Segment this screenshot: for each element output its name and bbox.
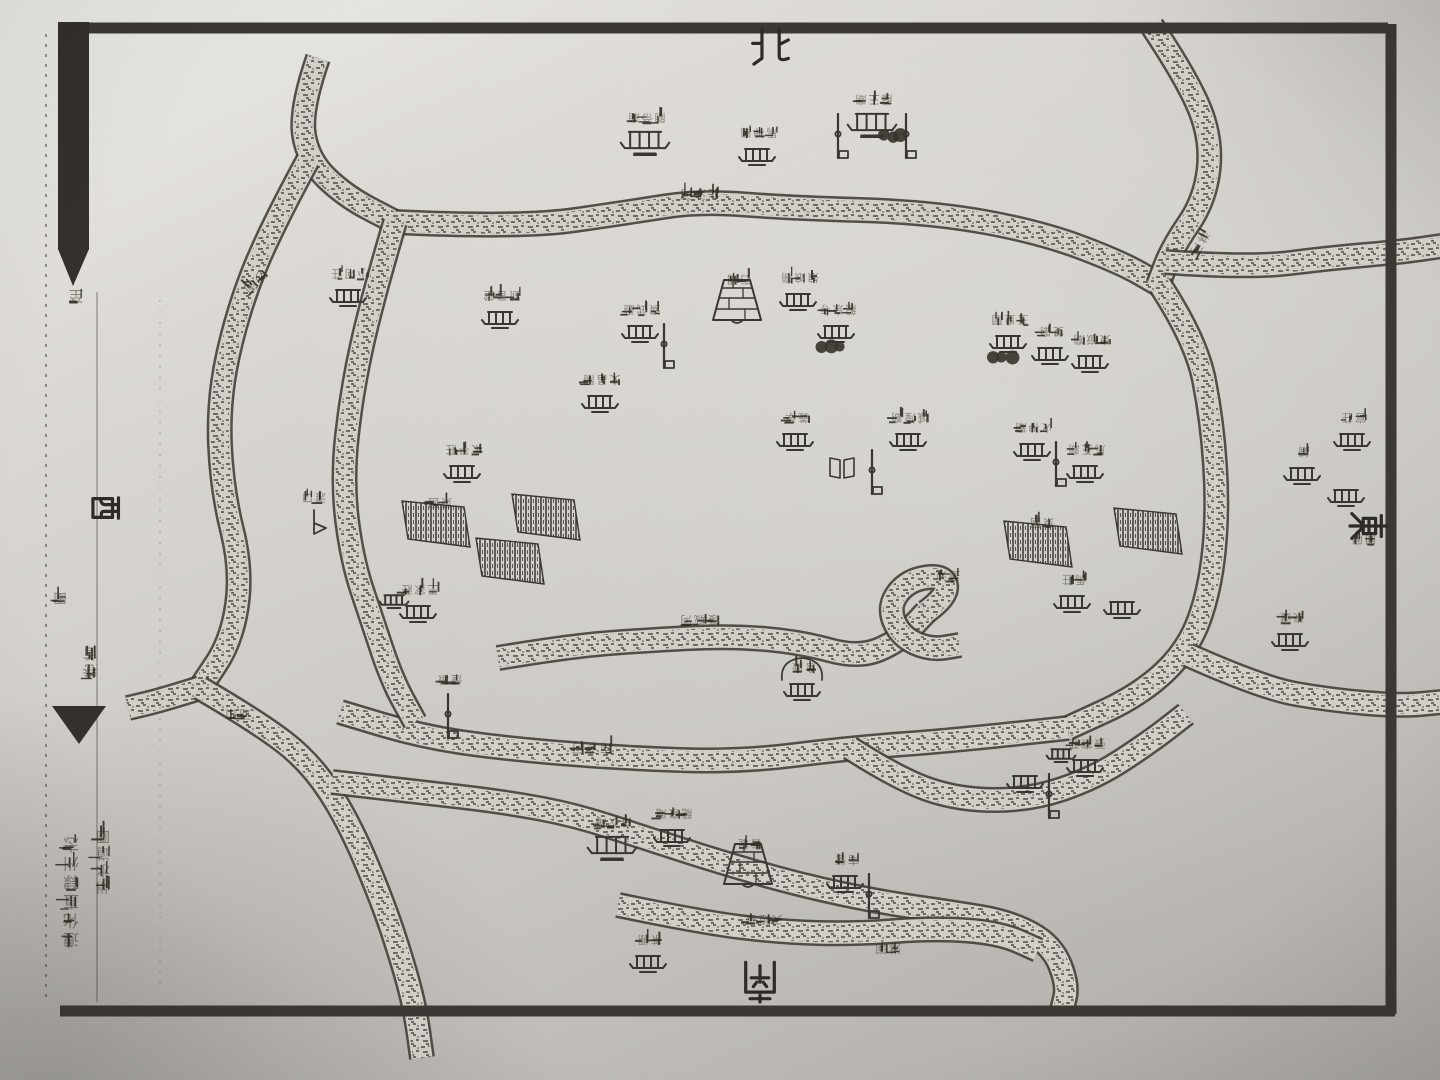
svg-text:墩: 墩 [438, 673, 449, 687]
feature-label: 渡口 [302, 489, 326, 506]
svg-text:圖: 圖 [96, 829, 110, 845]
river-top-left-stream [303, 58, 395, 222]
margin-title-outer: 遵化直隸州志 [55, 834, 79, 949]
svg-text:沙: 沙 [694, 187, 706, 201]
svg-text:園: 園 [1030, 516, 1041, 529]
river-name-label: 南沙河 [569, 735, 612, 755]
feature-label: 茶棚 [635, 929, 662, 947]
svg-text:莊: 莊 [446, 443, 457, 456]
feature-label: 張家莊 [1066, 736, 1106, 752]
svg-text:家: 家 [415, 583, 426, 597]
svg-text:渡: 渡 [315, 491, 326, 505]
svg-text:衣: 衣 [609, 816, 620, 830]
svg-text:河: 河 [680, 613, 692, 627]
feature-label: 小河莊 [332, 265, 369, 280]
svg-text:水: 水 [96, 863, 110, 879]
svg-text:天: 天 [772, 913, 783, 925]
svg-text:廟: 廟 [856, 93, 867, 107]
svg-text:沙: 沙 [586, 741, 598, 755]
svg-text:河: 河 [680, 187, 692, 201]
river-south-inner-band [332, 782, 1066, 1010]
feature-label: 馬王廟 [1067, 441, 1106, 457]
feature-house [1032, 348, 1068, 364]
svg-text:首: 首 [82, 644, 97, 661]
feature-twinflag [835, 114, 916, 158]
svg-text:河: 河 [345, 267, 356, 280]
feature-temple [621, 132, 670, 155]
svg-text:廟: 廟 [1016, 421, 1027, 435]
feature-flag [869, 450, 882, 494]
feature-label: 官莊 [1341, 408, 1366, 425]
margin-section-char: 圖 [51, 587, 67, 606]
feature-house [1054, 596, 1090, 612]
svg-text:嶽: 嶽 [1087, 333, 1098, 346]
margin-title-inner: 州水道圖 [88, 821, 110, 896]
svg-text:棚: 棚 [638, 933, 649, 947]
feature-label: 王家莊 [397, 578, 439, 597]
svg-text:隸: 隸 [63, 873, 79, 891]
feature-house [1334, 434, 1370, 450]
svg-text:渡: 渡 [1280, 611, 1291, 625]
river-east-branch-out [1165, 246, 1440, 265]
river-west-exit [128, 688, 200, 708]
svg-text:圖: 圖 [53, 590, 66, 605]
margin-page-number: 至 [68, 287, 83, 304]
fishtail-mark-upper [58, 249, 89, 286]
svg-text:娘: 娘 [795, 271, 806, 285]
svg-text:南: 南 [600, 741, 612, 756]
svg-text:東: 東 [1043, 516, 1054, 529]
svg-text:河: 河 [875, 941, 887, 955]
svg-text:帝: 帝 [642, 111, 653, 125]
svg-text:至: 至 [68, 287, 83, 304]
svg-text:馬: 馬 [1095, 443, 1106, 456]
feature-house [630, 956, 666, 972]
feature-label: 演武廳 [620, 300, 660, 317]
feature-treehouse [816, 326, 854, 353]
svg-text:煙: 煙 [451, 673, 462, 686]
feature-label: 玉皇閣 [992, 311, 1029, 327]
feature-label: 天燈臺 [741, 913, 782, 927]
river-east-exit [1188, 655, 1440, 705]
feature-label: 義學 [781, 411, 809, 425]
feature-house [1072, 356, 1108, 372]
svg-text:閣: 閣 [584, 373, 595, 386]
river-north-moat [395, 203, 1160, 285]
svg-text:廟: 廟 [629, 111, 640, 125]
svg-text:王: 王 [428, 583, 439, 595]
svg-text:河: 河 [239, 707, 251, 721]
svg-text:菜: 菜 [441, 496, 452, 509]
svg-text:廟: 廟 [1074, 333, 1085, 347]
feature-label: 馬莊 [1062, 571, 1086, 587]
svg-text:龍: 龍 [846, 303, 857, 317]
feature-label: 石堤 [738, 835, 762, 850]
svg-text:神: 神 [1029, 421, 1040, 435]
svg-text:廳: 廳 [624, 303, 635, 317]
svg-text:口: 口 [302, 491, 313, 503]
svg-text:觀: 觀 [510, 289, 521, 302]
feature-label: 鋪 [1298, 443, 1310, 459]
svg-text:石: 石 [740, 273, 751, 285]
feature-label: 火神廟 [1014, 418, 1053, 435]
svg-text:武: 武 [637, 303, 648, 316]
feature-label: 龍泉庵 [651, 807, 692, 821]
svg-text:火: 火 [1042, 421, 1053, 433]
feature-flaghouse [622, 324, 674, 368]
svg-text:龍: 龍 [882, 93, 893, 107]
river-network [128, 26, 1440, 1058]
svg-text:王: 王 [1082, 443, 1093, 455]
feature-label: 關帝廟 [627, 107, 666, 125]
feature-house [444, 466, 480, 482]
svg-text:州: 州 [96, 880, 110, 896]
svg-text:池: 池 [936, 569, 947, 582]
feature-label: 龍泉寺 [818, 302, 857, 317]
svg-text:廟: 廟 [892, 411, 903, 425]
svg-text:關: 關 [655, 111, 666, 124]
feature-label: 觀音堂 [484, 284, 521, 303]
feature-label: 太平莊 [446, 442, 483, 457]
feature-label: 文昌閣 [579, 372, 621, 387]
feature-house [1067, 466, 1103, 482]
svg-text:家: 家 [1082, 737, 1093, 751]
svg-text:石: 石 [751, 837, 762, 849]
svg-text:河: 河 [572, 741, 584, 755]
svg-text:太: 太 [472, 443, 483, 456]
map-canvas: 關帝廟馬神廟龍王廟小河莊觀音堂演武廳石閘娘娘廟龍泉寺玉皇閣雙廟東嶽廟文昌閣義學城… [0, 0, 1440, 1080]
svg-text:城: 城 [918, 411, 929, 424]
svg-text:卷: 卷 [82, 662, 97, 679]
svg-text:皇: 皇 [1005, 313, 1016, 327]
feature-house [1272, 634, 1308, 650]
svg-text:莊: 莊 [1342, 411, 1353, 424]
fishtail-mark-lower [52, 706, 106, 744]
feature-hatch [512, 494, 580, 540]
svg-text:直: 直 [63, 892, 79, 910]
svg-text:口: 口 [225, 707, 237, 721]
feature-label: 龍王廟 [853, 91, 893, 108]
svg-text:音: 音 [497, 289, 508, 303]
feature-label: 石閘 [727, 268, 751, 286]
svg-text:莊: 莊 [402, 583, 413, 596]
feature-hatch [1114, 508, 1182, 554]
svg-text:昌: 昌 [597, 373, 608, 386]
feature-dam [713, 280, 761, 323]
feature-label: 雙廟 [1035, 324, 1064, 340]
binding-black-bar [58, 22, 89, 250]
river-name-label: 河口 [225, 707, 251, 721]
feature-label: 東嶽廟 [1071, 331, 1110, 347]
feature-label: 煙墩 [436, 673, 462, 687]
feature-label: 馬神廟 [741, 126, 778, 141]
svg-text:泉: 泉 [669, 807, 680, 821]
svg-text:淋: 淋 [889, 941, 901, 955]
feature-book [830, 458, 854, 478]
compass-north-label [753, 28, 789, 64]
svg-text:燈: 燈 [759, 913, 770, 927]
svg-text:城: 城 [694, 613, 706, 627]
feature-house [582, 396, 618, 412]
feature-treehouse [987, 336, 1026, 364]
svg-text:營: 營 [835, 853, 846, 866]
svg-text:莊: 莊 [1062, 573, 1073, 586]
feature-flaghouse [1014, 442, 1066, 486]
svg-text:堂: 堂 [484, 289, 495, 302]
svg-text:東: 東 [1293, 611, 1304, 624]
river-west-inner [345, 222, 416, 722]
svg-text:閘: 閘 [727, 273, 738, 286]
feature-label: 東渡 [1277, 610, 1304, 626]
svg-text:雙: 雙 [1053, 325, 1064, 338]
svg-text:南: 南 [848, 853, 859, 866]
river-name-label: 淋河 [875, 941, 901, 955]
margin-volume-label: 卷首 [81, 644, 98, 679]
svg-text:東: 東 [1100, 333, 1111, 346]
feature-label: 城隍廟 [887, 407, 928, 425]
river-west-outer [200, 160, 308, 688]
feature-house [780, 294, 816, 310]
feature-flag [445, 694, 458, 738]
feature-label: 白衣庵 [592, 814, 632, 830]
svg-text:官: 官 [1355, 411, 1366, 425]
svg-text:神: 神 [754, 126, 765, 140]
feature-boat [314, 510, 326, 534]
feature-cluster [380, 595, 436, 622]
svg-text:廟: 廟 [1069, 443, 1080, 457]
svg-text:廟: 廟 [782, 271, 793, 285]
svg-text:白: 白 [622, 816, 633, 830]
feature-house [777, 434, 813, 450]
svg-text:蓮: 蓮 [949, 569, 960, 583]
binding-margin-text: 至圖卷首州水道圖遵化直隸州志 [51, 287, 110, 949]
svg-text:平: 平 [459, 443, 470, 455]
svg-text:泉: 泉 [833, 303, 844, 317]
svg-text:演: 演 [650, 303, 661, 317]
svg-text:庵: 庵 [656, 807, 667, 821]
feature-house [482, 312, 518, 328]
svg-text:州: 州 [63, 854, 79, 871]
svg-text:北: 北 [708, 187, 720, 201]
svg-text:志: 志 [63, 835, 79, 853]
svg-text:馬: 馬 [767, 126, 778, 139]
svg-text:臺: 臺 [746, 913, 757, 927]
feature-house [890, 434, 926, 450]
svg-text:學: 學 [785, 411, 796, 424]
svg-text:玉: 玉 [1018, 313, 1029, 325]
svg-text:廒: 廒 [792, 661, 803, 675]
svg-text:園: 園 [428, 496, 439, 509]
svg-text:莊: 莊 [332, 267, 343, 280]
svg-text:閣: 閣 [992, 313, 1003, 326]
svg-text:護: 護 [708, 613, 720, 628]
compass-east-label [1350, 514, 1386, 539]
svg-text:寺: 寺 [820, 303, 831, 316]
river-southwest-stream [200, 688, 422, 1058]
svg-text:庵: 庵 [596, 816, 607, 830]
river-name-label: 北沙河 [680, 183, 720, 201]
svg-text:義: 義 [798, 411, 809, 425]
svg-text:文: 文 [610, 373, 621, 387]
feature-house [1104, 602, 1140, 618]
feature-house [739, 149, 775, 165]
svg-text:廟: 廟 [741, 126, 752, 140]
feature-label: 娘娘廟 [782, 267, 819, 285]
svg-text:莊: 莊 [1069, 737, 1080, 750]
svg-text:隍: 隍 [905, 411, 916, 424]
feature-house [1328, 490, 1364, 506]
svg-text:鋪: 鋪 [1299, 445, 1310, 459]
svg-text:堤: 堤 [738, 837, 749, 850]
svg-text:茶: 茶 [651, 933, 662, 946]
svg-text:王: 王 [869, 93, 880, 105]
svg-text:張: 張 [1095, 737, 1106, 750]
svg-text:遵: 遵 [63, 930, 79, 949]
compass-south-label [746, 962, 775, 1002]
svg-text:小: 小 [358, 267, 369, 280]
river-name-label: 護城河 [680, 613, 720, 628]
svg-text:倉: 倉 [805, 661, 816, 675]
svg-text:化: 化 [63, 911, 79, 929]
svg-text:馬: 馬 [1075, 573, 1086, 586]
feature-hatch [476, 538, 544, 584]
svg-text:廟: 廟 [1040, 325, 1051, 339]
svg-text:娘: 娘 [808, 271, 819, 285]
svg-text:龍: 龍 [682, 807, 693, 821]
feature-cluster [1047, 749, 1103, 776]
feature-label: 南營 [835, 852, 859, 866]
feature-house [1284, 468, 1320, 484]
svg-text:道: 道 [96, 846, 110, 862]
